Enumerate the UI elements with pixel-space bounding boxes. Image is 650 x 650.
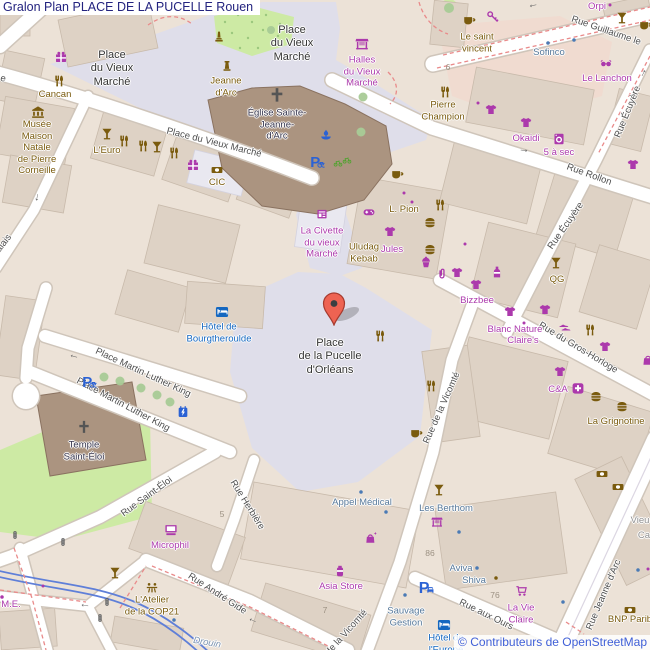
page-title: Gralon Plan PLACE DE LA PUCELLE Rouen bbox=[0, 0, 260, 15]
map-canvas[interactable]: Place du Vieux MarchéPlace du Vieux Marc… bbox=[0, 0, 650, 650]
location-marker[interactable] bbox=[321, 292, 347, 331]
marker-dot bbox=[331, 300, 338, 307]
marker-pin-icon bbox=[324, 293, 345, 325]
osm-attribution-link[interactable]: © Contributeurs de OpenStreetMap bbox=[454, 635, 650, 650]
